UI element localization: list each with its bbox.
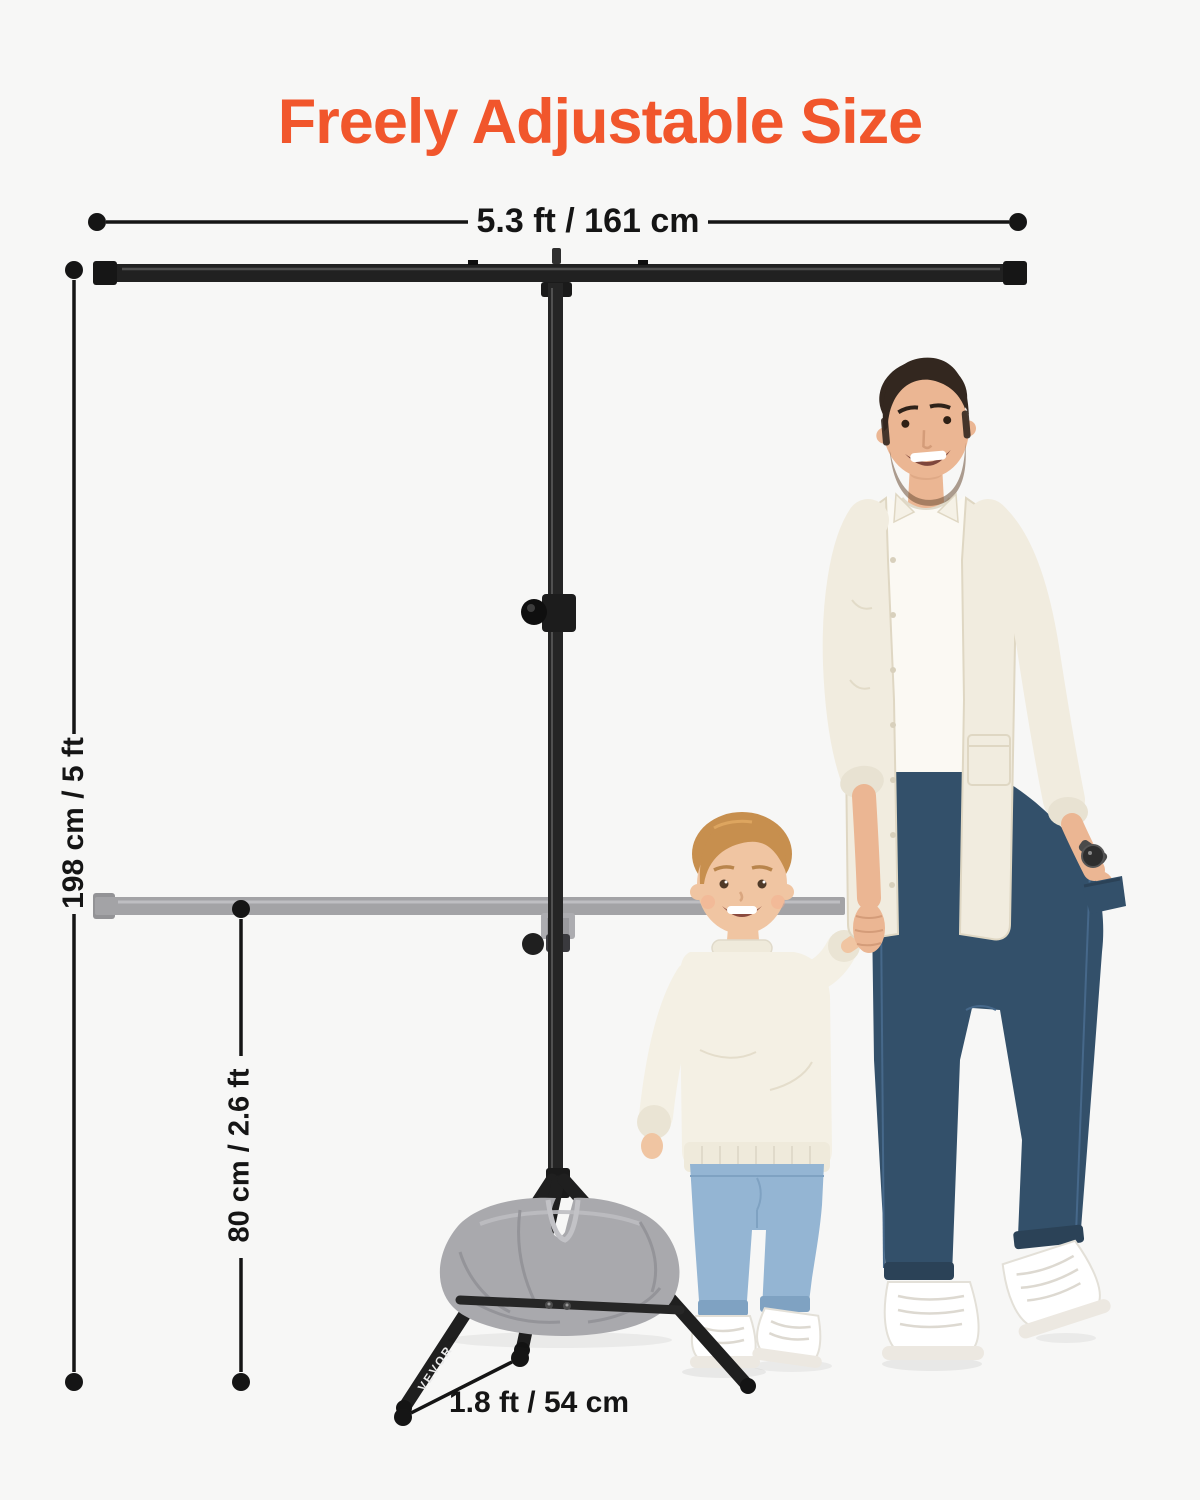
boy-left-hand (641, 1133, 663, 1159)
boy-jeans (690, 1164, 824, 1315)
man-left-sleeve (844, 520, 868, 772)
height-adjustment-knob (521, 599, 547, 625)
man-figure (838, 354, 1126, 1371)
chest-pocket (968, 735, 1010, 785)
telescoping-pole (548, 283, 563, 1185)
dimension-label-max-height: 198 cm / 5 ft (57, 703, 91, 943)
boy-right-shoe (752, 1307, 829, 1368)
weight-sandbag (440, 1198, 680, 1336)
dimension-label-base-leg: 1.8 ft / 54 cm (399, 1386, 679, 1420)
ghost-adjustment-knob (522, 933, 544, 955)
wrist-watch (1082, 845, 1104, 867)
top-crossbar (95, 264, 1025, 282)
pole-clamp (542, 594, 576, 632)
man-right-shoe (997, 1236, 1112, 1340)
dimension-label-crossbar-width: 5.3 ft / 161 cm (438, 202, 738, 241)
dimension-label-min-height: 80 cm / 2.6 ft (224, 1036, 257, 1276)
product-infographic: Freely Adjustable Size (0, 0, 1200, 1500)
